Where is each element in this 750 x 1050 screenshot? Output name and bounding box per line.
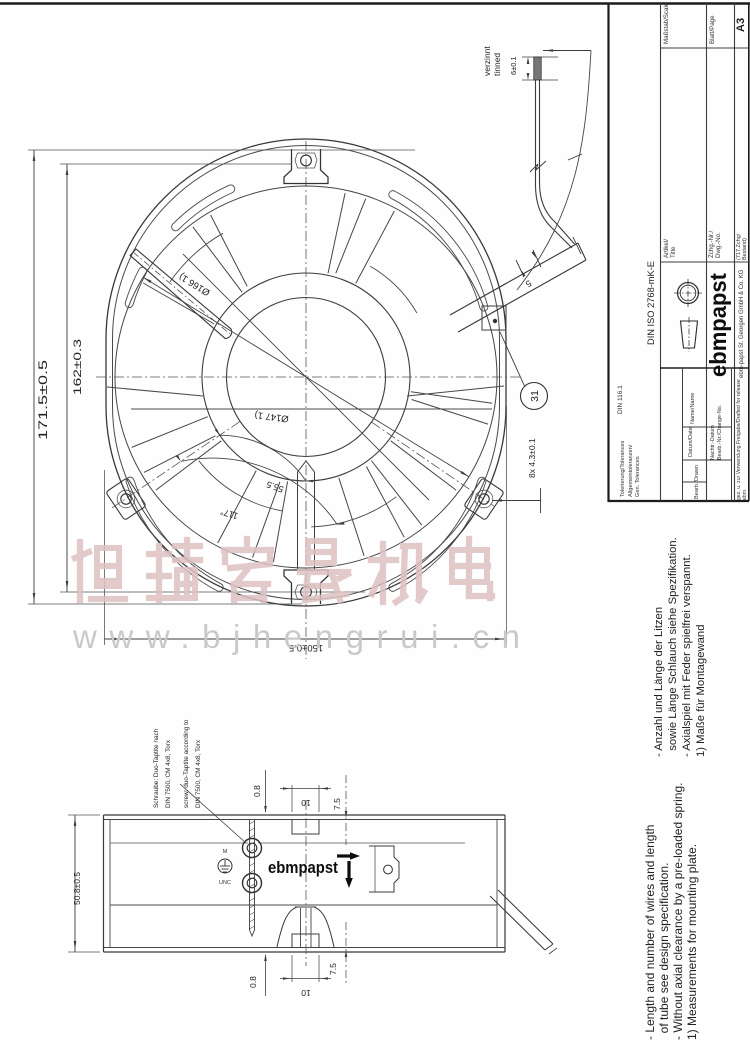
svg-text:1) Maße für Montagewand: 1) Maße für Montagewand xyxy=(695,625,707,758)
svg-text:7.5: 7.5 xyxy=(328,963,338,975)
svg-text:of tube see design specificati: of tube see design specification. xyxy=(657,863,671,1040)
svg-text:0.8: 0.8 xyxy=(248,976,258,988)
svg-text:8x 4.3±0.1: 8x 4.3±0.1 xyxy=(527,438,537,478)
svg-text:DIN ISO 2768-mK-E: DIN ISO 2768-mK-E xyxy=(646,261,656,345)
svg-text:Bearb.-Nr./Change-No.: Bearb.-Nr./Change-No. xyxy=(717,405,723,460)
svg-text:screw: duo-Taptite according t: screw: duo-Taptite according to xyxy=(183,719,190,808)
svg-text:DIN 7500, CM 4x8, Torx: DIN 7500, CM 4x8, Torx xyxy=(195,739,202,808)
svg-text:Zchg.-Nr./: Zchg.-Nr./ xyxy=(708,231,715,258)
svg-text:DIN 116.1: DIN 116.1 xyxy=(617,385,624,414)
svg-text:Allgemeintoleranzen/: Allgemeintoleranzen/ xyxy=(628,444,634,497)
svg-text:Bearb./Drawn: Bearb./Drawn xyxy=(694,465,700,499)
svg-text:10: 10 xyxy=(301,988,311,998)
svg-text:1) Measurements for mounting p: 1) Measurements for mounting plate. xyxy=(685,844,699,1040)
svg-text:55.5: 55.5 xyxy=(265,479,285,494)
svg-text:ebmpapst: ebmpapst xyxy=(705,273,731,377)
svg-text:31: 31 xyxy=(529,390,541,402)
svg-text:sowie Länge Schlauch siehe Spe: sowie Länge Schlauch siehe Spezifikation… xyxy=(667,537,679,757)
svg-text:- Without axial clearance by a: - Without axial clearance by a pre-loade… xyxy=(671,783,685,1040)
svg-text:DIN 7500, CM 4x8, Torx: DIN 7500, CM 4x8, Torx xyxy=(165,739,172,808)
svg-text:UNC: UNC xyxy=(219,880,231,886)
svg-text:7.5: 7.5 xyxy=(332,798,342,810)
svg-text:Tolerierung/Tolerances: Tolerierung/Tolerances xyxy=(620,441,626,497)
svg-text:Dwg.-No.: Dwg.-No. xyxy=(715,232,722,258)
svg-text:Title: Title xyxy=(670,246,677,258)
svg-text:0.8: 0.8 xyxy=(252,785,262,797)
svg-text:Schraube: Duo-Taptite nach: Schraube: Duo-Taptite nach xyxy=(153,728,160,808)
svg-text:- Anzahl und Länge der Litzen: - Anzahl und Länge der Litzen xyxy=(653,607,665,757)
svg-text:verzinnt: verzinnt xyxy=(482,46,492,76)
svg-text:162±0.3: 162±0.3 xyxy=(72,339,84,395)
svg-text:Artikel/: Artikel/ xyxy=(663,239,670,258)
svg-text:tinned: tinned xyxy=(492,53,502,76)
svg-text:6±0.1: 6±0.1 xyxy=(509,56,518,75)
svg-text:Gen. Tolerances: Gen. Tolerances xyxy=(635,456,641,497)
svg-text:- Axialspiel mit Feder spielfr: - Axialspiel mit Feder spielfrei verspan… xyxy=(681,554,693,757)
svg-text:ebm-papst St. Georgen GmbH & C: ebm-papst St. Georgen GmbH & Co. KG xyxy=(739,269,745,378)
svg-text:171.5±0.5: 171.5±0.5 xyxy=(36,360,50,440)
svg-text:Ø147 1): Ø147 1) xyxy=(254,409,289,424)
svg-text:Bestand): Bestand) xyxy=(742,238,748,260)
svg-text:Name/Name: Name/Name xyxy=(690,393,696,424)
svg-text:ebm: ebm xyxy=(742,490,748,500)
svg-text:www.bjhengrui.cn: www.bjhengrui.cn xyxy=(72,618,520,655)
svg-text:A3: A3 xyxy=(735,18,747,32)
svg-text:50.8±0.5: 50.8±0.5 xyxy=(72,872,82,905)
svg-text:10: 10 xyxy=(301,798,311,808)
svg-text:Datum/Date: Datum/Date xyxy=(688,427,694,457)
svg-text:- Length and number of wires a: - Length and number of wires and length xyxy=(643,825,657,1040)
svg-text:M: M xyxy=(223,849,228,855)
svg-text:Blatt/Page: Blatt/Page xyxy=(709,15,716,44)
svg-text:Nachtr.-Datum: Nachtr.-Datum xyxy=(710,425,716,460)
svg-text:gez. u. zur Verwendung Freigab: gez. u. zur Verwendung Freigabe/Drafted … xyxy=(736,379,742,500)
svg-text:Maßstab/Scale: Maßstab/Scale xyxy=(663,2,670,44)
svg-text:ebmpapst: ebmpapst xyxy=(268,858,338,877)
